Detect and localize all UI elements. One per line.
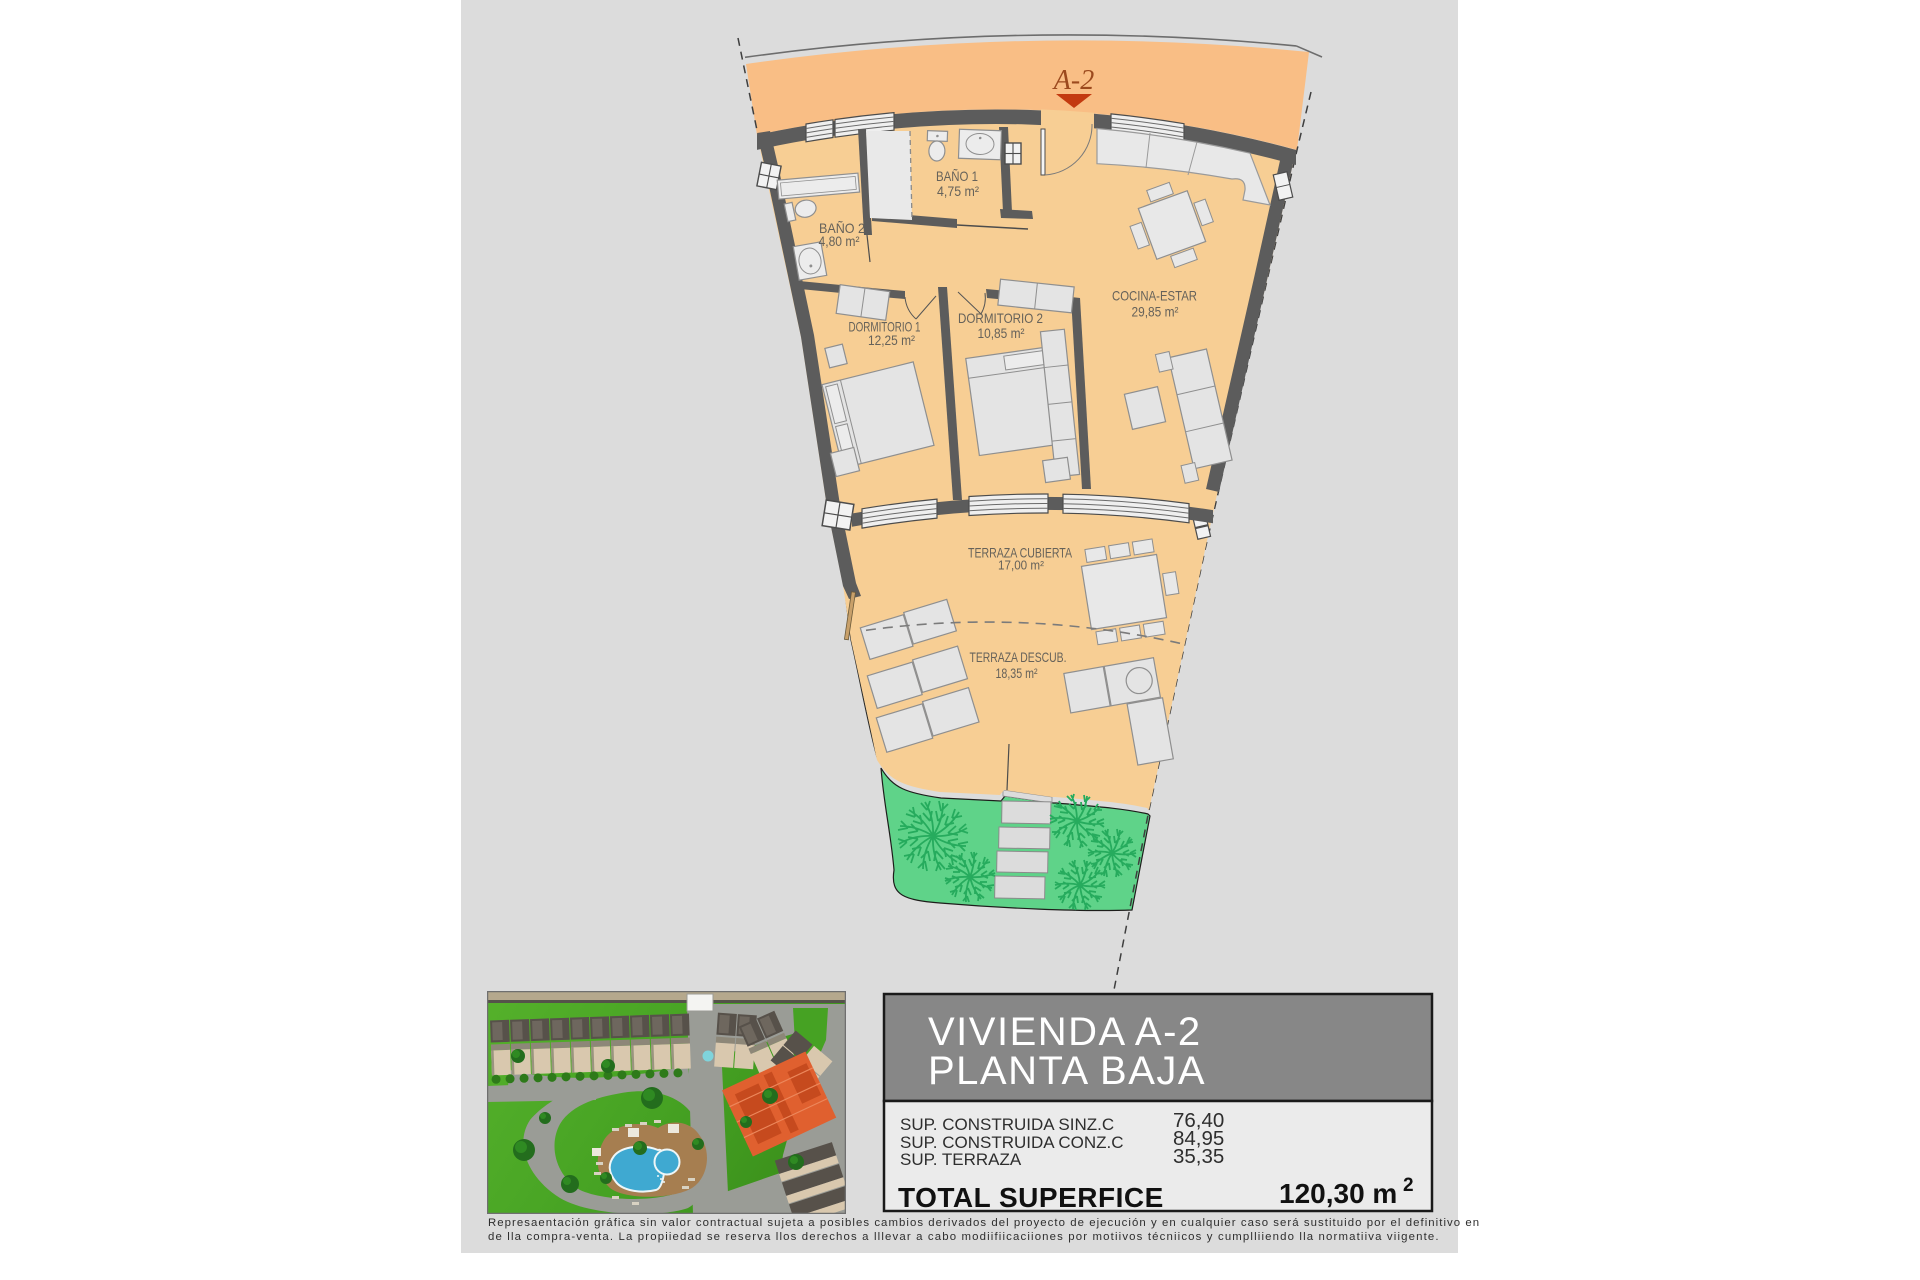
svg-text:A-2: A-2 [1052,65,1094,96]
svg-text:SUP. TERRAZA: SUP. TERRAZA [900,1150,1022,1169]
svg-text:10,85 m²: 10,85 m² [978,325,1025,341]
svg-text:COCINA-ESTAR: COCINA-ESTAR [1112,288,1197,304]
svg-text:DORMITORIO 2: DORMITORIO 2 [958,310,1043,326]
svg-text:PLANTA BAJA: PLANTA BAJA [928,1049,1206,1093]
svg-text:17,00 m²: 17,00 m² [998,559,1044,573]
svg-text:29,85 m²: 29,85 m² [1132,303,1179,319]
svg-text:VIVIENDA A-2: VIVIENDA A-2 [928,1010,1202,1054]
svg-text:35,35: 35,35 [1173,1145,1224,1168]
svg-text:4,80 m²: 4,80 m² [819,233,860,249]
svg-text:SUP. CONSTRUIDA SINZ.C: SUP. CONSTRUIDA SINZ.C [900,1115,1114,1134]
svg-text:BAÑO 1: BAÑO 1 [936,168,978,184]
svg-text:de lla compra-venta. La propii: de lla compra-venta. La propiiedad se re… [488,1231,1440,1243]
svg-text:120,30 m: 120,30 m [1279,1178,1397,1209]
svg-text:4,75 m²: 4,75 m² [937,183,979,199]
svg-text:Represaentación gráfica sin va: Represaentación gráfica sin valor contra… [488,1217,1480,1229]
svg-text:2: 2 [1403,1175,1414,1196]
svg-text:TERRAZA DESCUB.: TERRAZA DESCUB. [970,649,1067,665]
svg-text:12,25 m²: 12,25 m² [868,332,915,348]
svg-text:TOTAL SUPERFICE: TOTAL SUPERFICE [898,1182,1164,1213]
svg-text:18,35 m²: 18,35 m² [996,665,1038,681]
